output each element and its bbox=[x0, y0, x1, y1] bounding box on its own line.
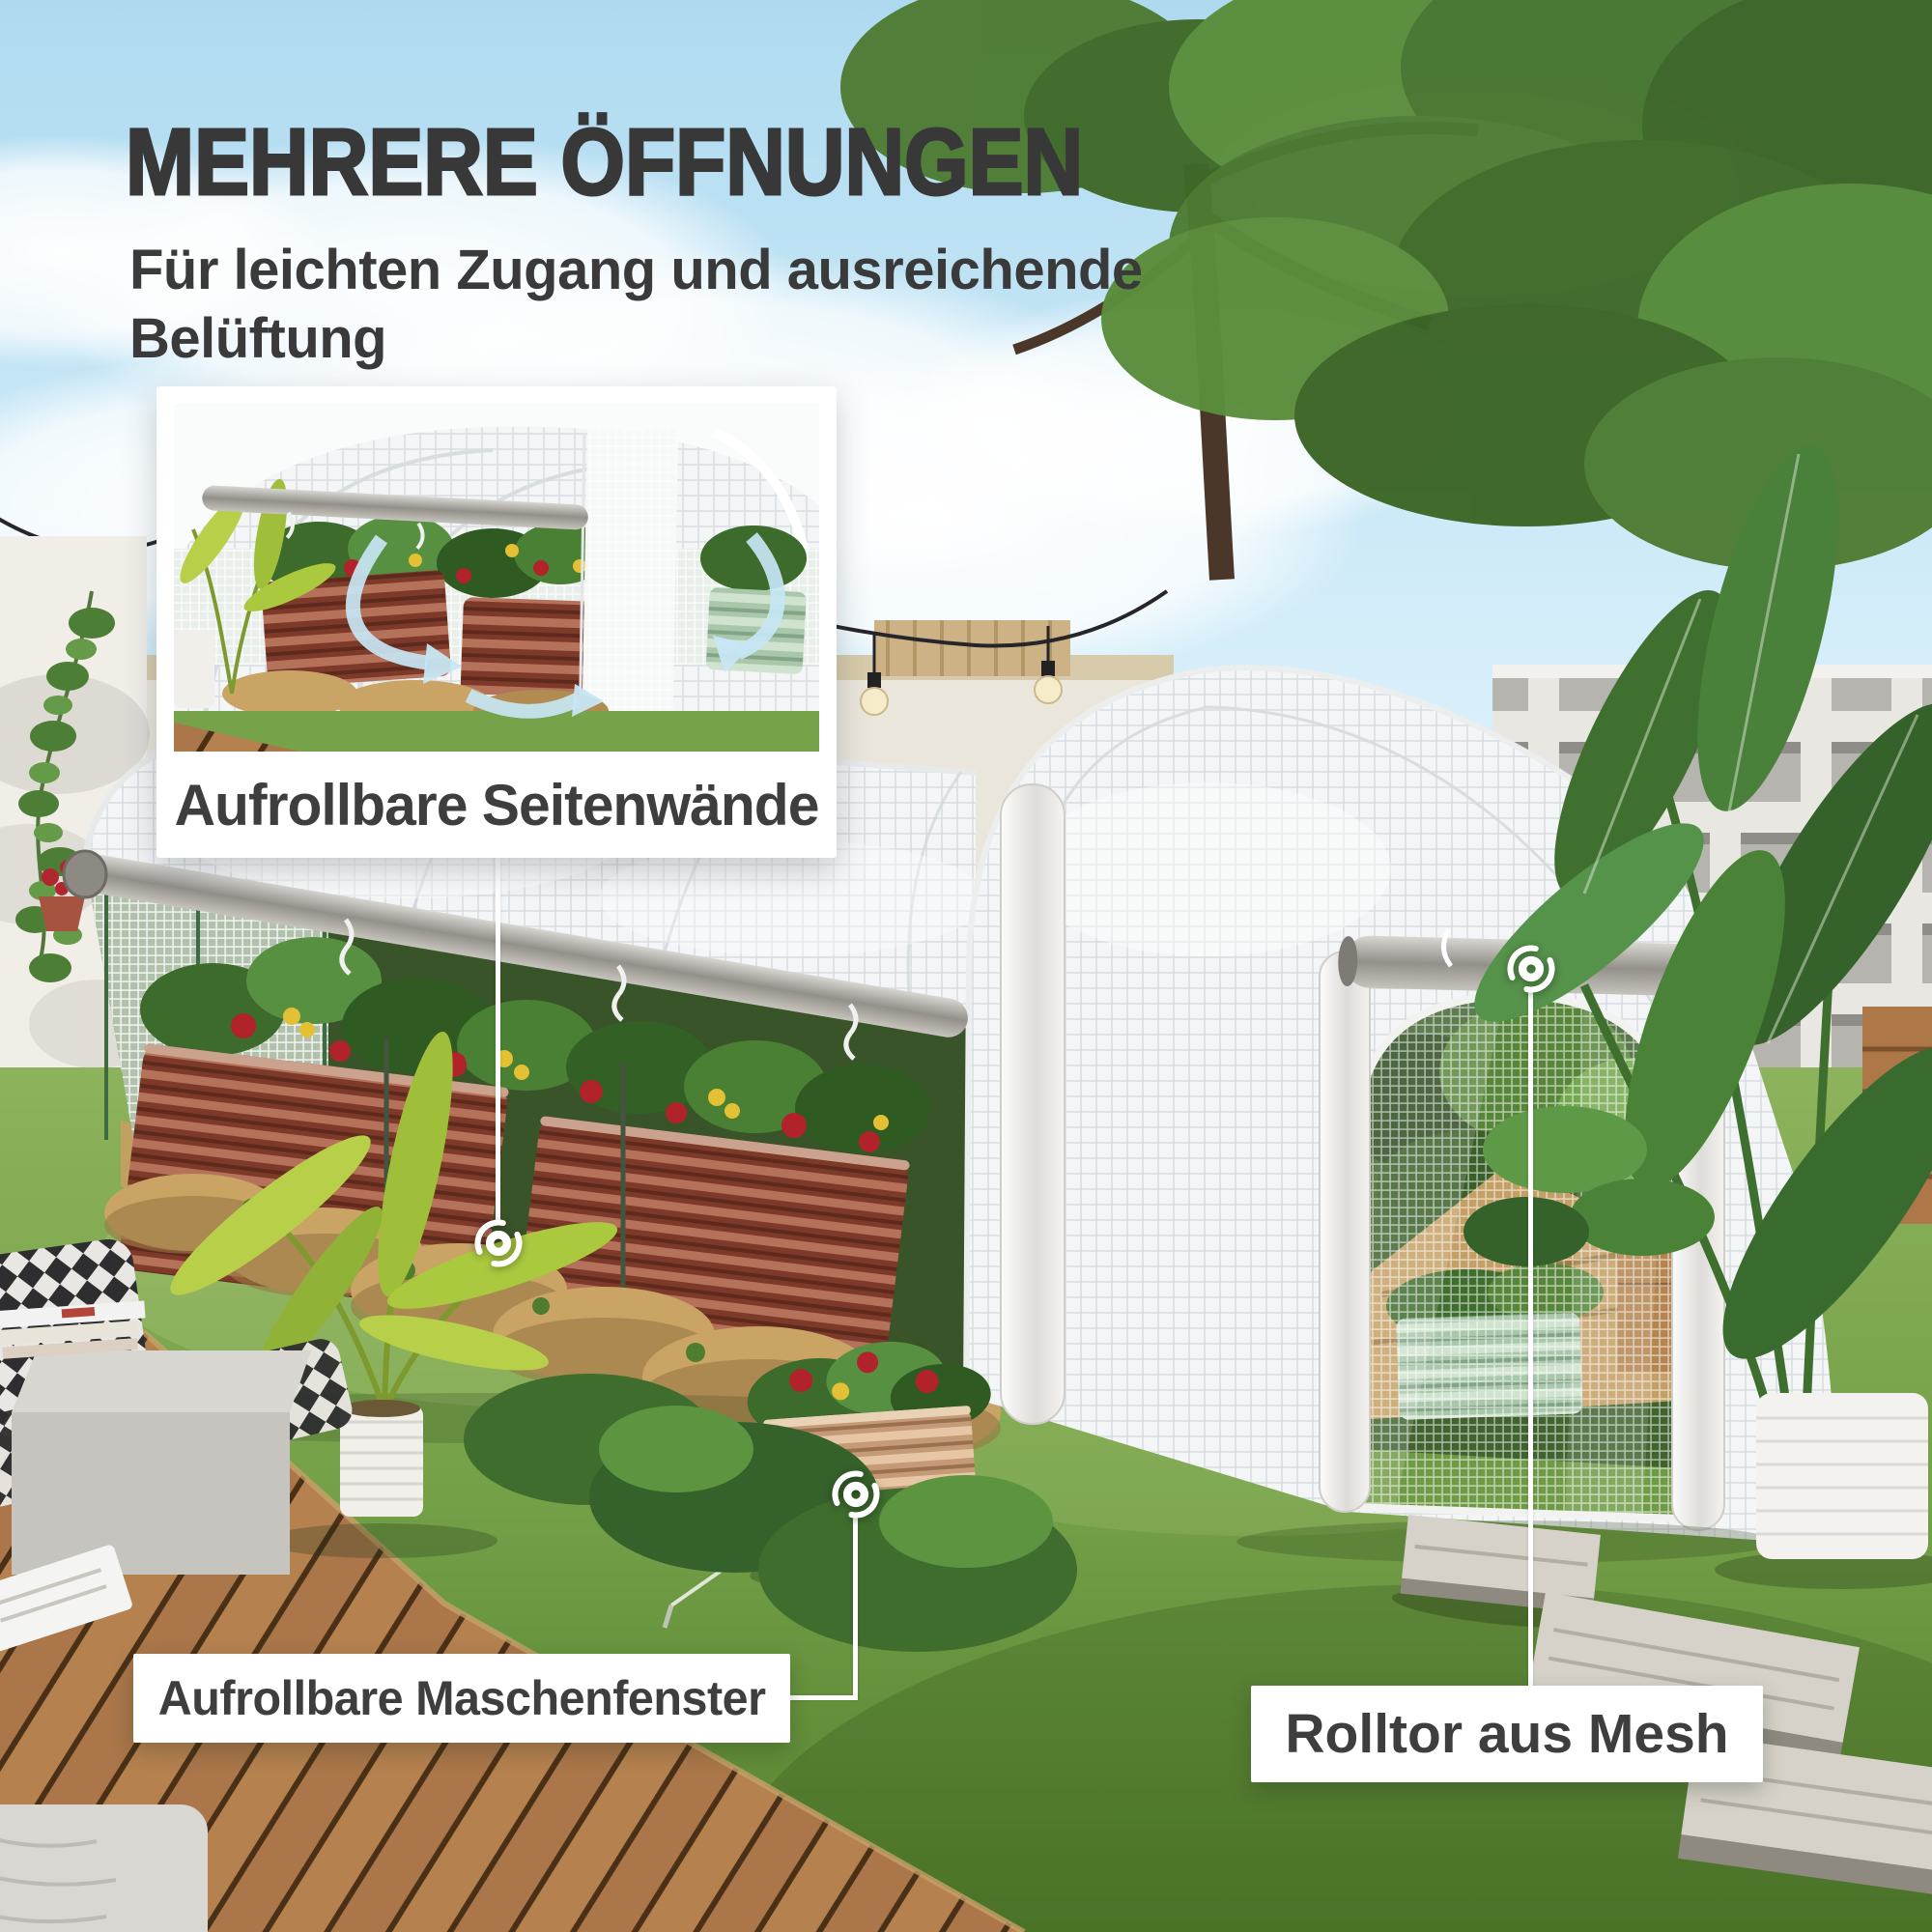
subtitle-line-2: Belüftung bbox=[129, 307, 386, 370]
focus-target-icon bbox=[1504, 942, 1558, 996]
callout-mesh-door-text: Rolltor aus Mesh bbox=[1285, 1702, 1728, 1766]
connector-line-sidewalls bbox=[496, 856, 500, 1223]
page-subtitle: Für leichten Zugang und ausreichende Bel… bbox=[129, 236, 1213, 373]
inset-card: Aufrollbare Seitenwände bbox=[156, 386, 837, 858]
focus-target-icon bbox=[471, 1216, 526, 1270]
connector-line-windows-horizontal bbox=[790, 1695, 858, 1700]
greenhouse-product-infographic: MEHRERE ÖFFNUNGEN Für leichten Zugang un… bbox=[0, 0, 1932, 1932]
page-title: MEHRERE ÖFFNUNGEN bbox=[126, 114, 1213, 211]
callout-mesh-door: Rolltor aus Mesh bbox=[1251, 1686, 1763, 1782]
callout-mesh-windows-text: Aufrollbare Maschenfenster bbox=[158, 1670, 766, 1726]
headline-block: MEHRERE ÖFFNUNGEN Für leichten Zugang un… bbox=[126, 114, 1213, 373]
subtitle-line-1: Für leichten Zugang und ausreichende bbox=[129, 239, 1143, 301]
focus-target-icon bbox=[829, 1467, 883, 1521]
callout-mesh-windows: Aufrollbare Maschenfenster bbox=[133, 1654, 790, 1743]
inset-caption: Aufrollbare Seitenwände bbox=[181, 752, 813, 858]
inset-photo-rollup-sidewalls bbox=[174, 404, 819, 752]
connector-line-windows-vertical bbox=[853, 1517, 858, 1700]
connector-line-door bbox=[1528, 991, 1533, 1689]
